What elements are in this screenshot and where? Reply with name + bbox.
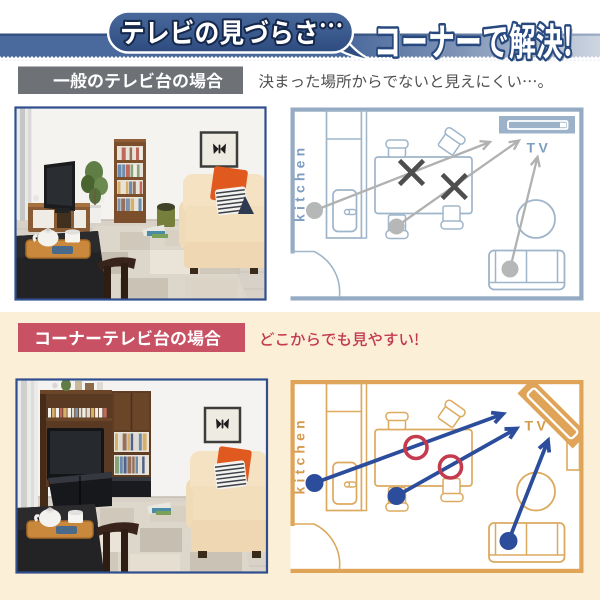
svg-text:TV: TV xyxy=(525,418,550,434)
svg-text:kitchen: kitchen xyxy=(292,144,308,222)
svg-text:kitchen: kitchen xyxy=(292,416,308,494)
svg-text:TV: TV xyxy=(527,140,552,156)
